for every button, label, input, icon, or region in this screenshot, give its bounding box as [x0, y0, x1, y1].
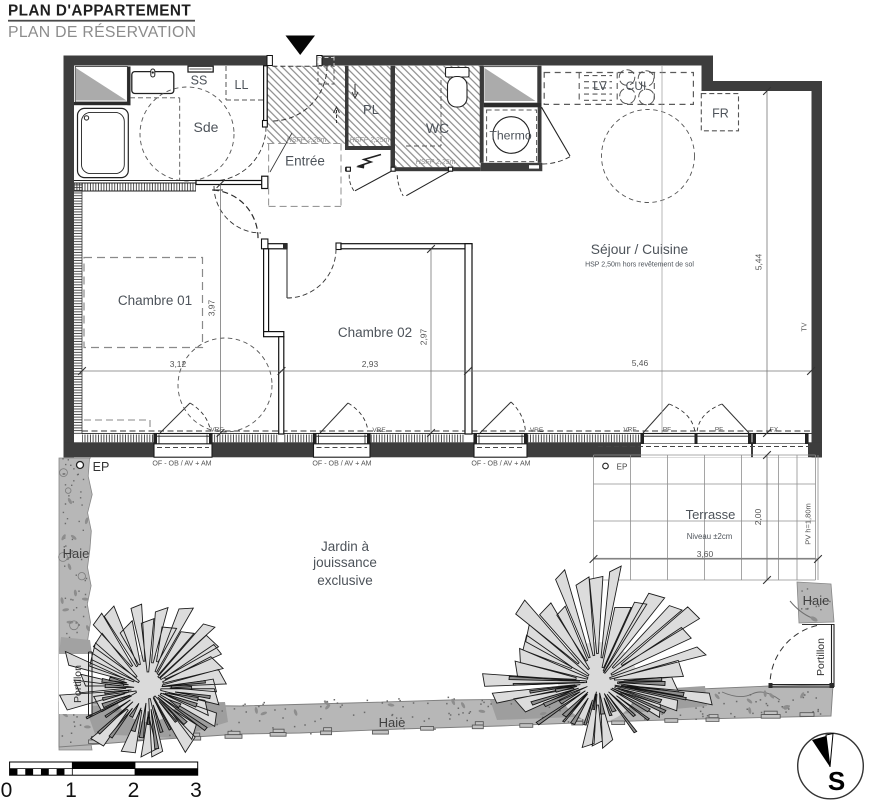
svg-text:2,93: 2,93	[362, 359, 379, 369]
svg-text:WC: WC	[426, 120, 449, 136]
svg-text:SS: SS	[191, 74, 208, 88]
svg-text:Séjour / Cuisine: Séjour / Cuisine	[591, 242, 689, 257]
svg-text:PLAN DE RÉSERVATION: PLAN DE RÉSERVATION	[8, 22, 196, 41]
svg-text:OF - OB / AV + AM: OF - OB / AV + AM	[471, 460, 530, 468]
svg-text:VRE: VRE	[210, 427, 224, 434]
svg-text:Jardin à: Jardin à	[321, 539, 370, 554]
svg-text:3,97: 3,97	[207, 299, 217, 316]
svg-text:S: S	[828, 766, 845, 796]
svg-text:0: 0	[1, 779, 13, 800]
svg-text:PL: PL	[363, 102, 379, 117]
svg-text:HSP 2,50m hors revêtement de s: HSP 2,50m hors revêtement de sol	[585, 262, 694, 269]
svg-text:Chambre 02: Chambre 02	[338, 325, 412, 340]
svg-text:2: 2	[128, 779, 140, 800]
svg-text:Portillon: Portillon	[72, 665, 84, 703]
svg-text:Niveau ±2cm: Niveau ±2cm	[687, 532, 732, 541]
svg-text:3,12: 3,12	[170, 359, 187, 369]
svg-text:3,60: 3,60	[697, 549, 714, 559]
svg-text:HSFP 2,25m: HSFP 2,25m	[416, 159, 456, 166]
svg-text:Haie: Haie	[379, 715, 406, 730]
svg-text:2,00: 2,00	[753, 508, 763, 525]
svg-text:Thermo: Thermo	[489, 129, 532, 143]
svg-text:HSFP 2,25m: HSFP 2,25m	[350, 137, 390, 144]
svg-text:Terrasse: Terrasse	[686, 507, 736, 522]
svg-text:jouissance: jouissance	[312, 555, 377, 570]
svg-text:PV h=1,80m: PV h=1,80m	[804, 503, 813, 544]
svg-text:CUI: CUI	[626, 79, 647, 93]
svg-text:FR: FR	[712, 107, 729, 121]
svg-text:Portillon: Portillon	[815, 638, 827, 676]
svg-text:OF - OB / AV + AM: OF - OB / AV + AM	[312, 460, 371, 468]
svg-text:FX: FX	[770, 427, 779, 434]
svg-text:VRE: VRE	[372, 427, 386, 434]
svg-text:VRE: VRE	[623, 427, 637, 434]
svg-text:LV: LV	[593, 79, 607, 93]
svg-text:Haie: Haie	[803, 593, 830, 608]
svg-text:PF: PF	[663, 427, 671, 434]
svg-text:2,97: 2,97	[419, 328, 429, 345]
svg-text:Entrée: Entrée	[285, 154, 325, 169]
svg-text:PLAN D'APPARTEMENT: PLAN D'APPARTEMENT	[8, 3, 191, 20]
svg-text:PF: PF	[715, 427, 723, 434]
svg-text:VRE: VRE	[530, 427, 544, 434]
svg-text:OF - OB / AV + AM: OF - OB / AV + AM	[152, 460, 211, 468]
svg-text:Chambre 01: Chambre 01	[118, 293, 192, 308]
svg-text:EP: EP	[93, 460, 110, 474]
svg-text:exclusive: exclusive	[317, 573, 373, 588]
svg-text:Haie: Haie	[63, 546, 90, 561]
svg-text:LL: LL	[235, 78, 249, 92]
svg-text:5,44: 5,44	[754, 253, 764, 270]
svg-text:3: 3	[190, 779, 202, 800]
svg-text:1: 1	[65, 779, 77, 800]
svg-text:5,46: 5,46	[632, 358, 649, 368]
svg-text:EP: EP	[617, 463, 628, 472]
svg-text:HSFP 2,20m: HSFP 2,20m	[287, 137, 327, 144]
svg-text:Sde: Sde	[194, 119, 219, 135]
svg-text:TV: TV	[802, 322, 809, 331]
